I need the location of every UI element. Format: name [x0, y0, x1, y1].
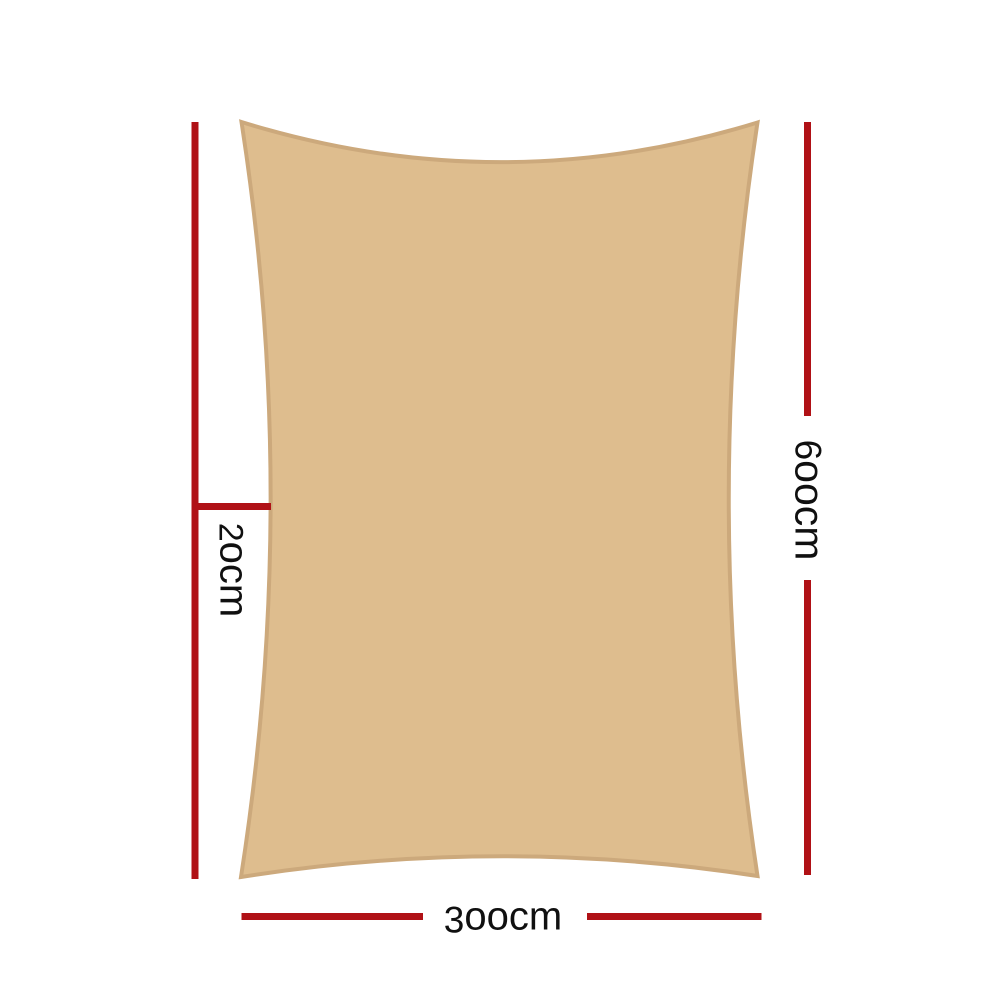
svg-text:2ocm: 2ocm — [212, 523, 256, 618]
svg-text:3oocm: 3oocm — [444, 895, 562, 941]
svg-text:6oocm: 6oocm — [787, 440, 833, 561]
